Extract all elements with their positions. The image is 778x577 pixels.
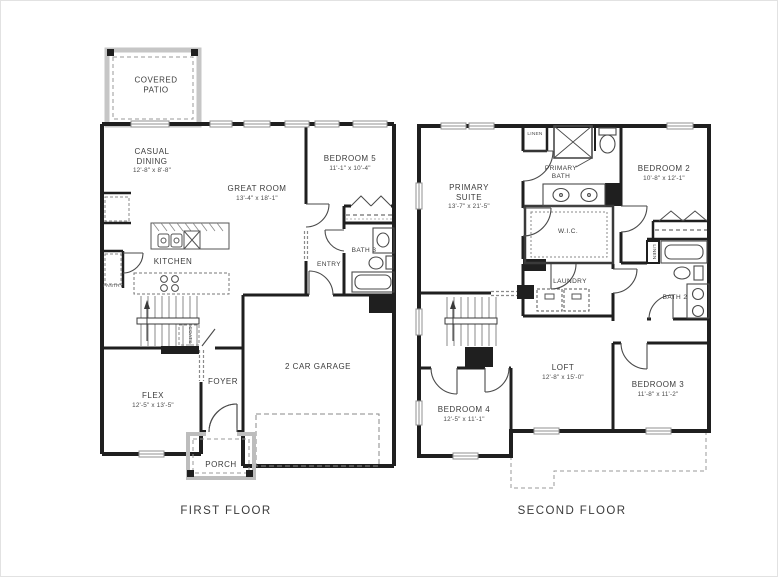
kitchen-sink-icon <box>171 234 182 247</box>
stair-rail <box>137 318 199 324</box>
room-label-linen-top: LINEN <box>527 132 542 138</box>
garage-entry-door <box>309 271 333 295</box>
porch-post <box>246 470 253 477</box>
room-label-pantry: PANTRY <box>103 284 123 290</box>
room-label-coats: COATS <box>186 326 192 343</box>
room-label-garage: 2 CAR GARAGE <box>285 362 351 372</box>
room-label-entry: ENTRY <box>317 261 341 269</box>
room-label-primary-suite: PRIMARY SUITE 13'-7" x 21'-5" <box>438 183 500 211</box>
primary-sink-icon <box>553 189 569 202</box>
bedroom2-door <box>621 206 647 232</box>
primary-sink-icon <box>581 189 597 202</box>
bath3-sink-icon <box>377 233 389 247</box>
floorplan-page: COVERED PATIO CASUAL DINING 12'-8" x 8'-… <box>0 0 778 577</box>
room-label-bedroom-3: BEDROOM 3 11'-8" x 11'-2" <box>632 380 685 398</box>
room-label-bath-2: BATH 2 <box>661 294 689 302</box>
bath3-fixtures <box>352 228 394 292</box>
kitchen-island <box>151 223 229 249</box>
kitchen-range <box>134 273 229 294</box>
bedroom5-door <box>306 204 329 227</box>
room-label-porch: PORCH <box>205 460 236 470</box>
second-floor-caption: SECOND FLOOR <box>518 505 627 519</box>
room-label-covered-patio: COVERED PATIO <box>124 75 188 94</box>
garage-door-zone <box>256 414 379 466</box>
room-label-linen-hall: LINEN <box>650 244 656 259</box>
dining-nook <box>105 197 129 221</box>
primary-toilet-icon <box>599 128 616 135</box>
patio-post <box>191 49 198 56</box>
kitchen-sink-icon <box>158 234 169 247</box>
coats-door <box>202 329 215 346</box>
dryer-icon <box>564 289 589 311</box>
room-label-bedroom-4: BEDROOM 4 12'-5" x 11'-1" <box>438 405 491 423</box>
bedroom4-door <box>431 368 457 394</box>
room-label-primary-bath: PRIMARY BATH <box>536 165 586 181</box>
ff-chase <box>369 295 394 313</box>
pantry-shelves <box>105 254 121 284</box>
first-floor-caption: FIRST FLOOR <box>180 505 271 519</box>
loft-door <box>485 368 509 392</box>
bedroom3-door <box>621 343 647 369</box>
bath2-sink-icon <box>693 306 704 317</box>
sf-openings <box>491 292 517 296</box>
primary-vanity <box>543 184 605 206</box>
room-label-bedroom-2: BEDROOM 2 10'-8" x 12'-1" <box>638 164 691 182</box>
room-label-bedroom-5: BEDROOM 5 11'-1" x 10'-4" <box>324 154 377 172</box>
room-label-great-room: GREAT ROOM 13'-4" x 18'-1" <box>228 184 287 202</box>
room-label-wic: W.I.C. <box>558 228 578 236</box>
room-label-kitchen: KITCHEN <box>154 257 193 267</box>
bath2-sink-icon <box>693 289 704 300</box>
laundry-machines <box>537 289 589 311</box>
bath3-toilet-icon <box>369 257 383 269</box>
pantry-door <box>123 253 143 273</box>
bath2-tub <box>661 241 707 263</box>
bath2-fixtures <box>661 241 709 318</box>
room-label-loft: LOFT 12'-8" x 15'-0" <box>542 363 584 381</box>
bath3-door <box>325 230 344 251</box>
first-floor-plan <box>102 49 394 478</box>
room-label-laundry: LAUNDRY <box>553 278 587 286</box>
bath2-toilet-icon <box>674 267 690 279</box>
patio-post <box>107 49 114 56</box>
room-label-foyer: FOYER <box>208 377 238 387</box>
room-label-casual-dining: CASUAL DINING 12'-8" x 8'-8" <box>124 147 180 175</box>
front-door-opening <box>206 428 237 436</box>
bedroom5-closet <box>346 196 393 219</box>
ff-openings <box>200 231 308 381</box>
footprint-dashed-outline <box>511 432 706 488</box>
bath2-vanity <box>687 284 709 318</box>
laundry-door <box>613 269 637 293</box>
ff-stairs <box>137 296 199 354</box>
washer-icon <box>537 289 562 311</box>
room-label-bath-3: BATH 3 <box>350 247 378 255</box>
sf-stairs <box>445 297 497 346</box>
porch-post <box>187 470 194 477</box>
room-label-flex: FLEX 12'-5" x 13'-5" <box>132 391 174 409</box>
